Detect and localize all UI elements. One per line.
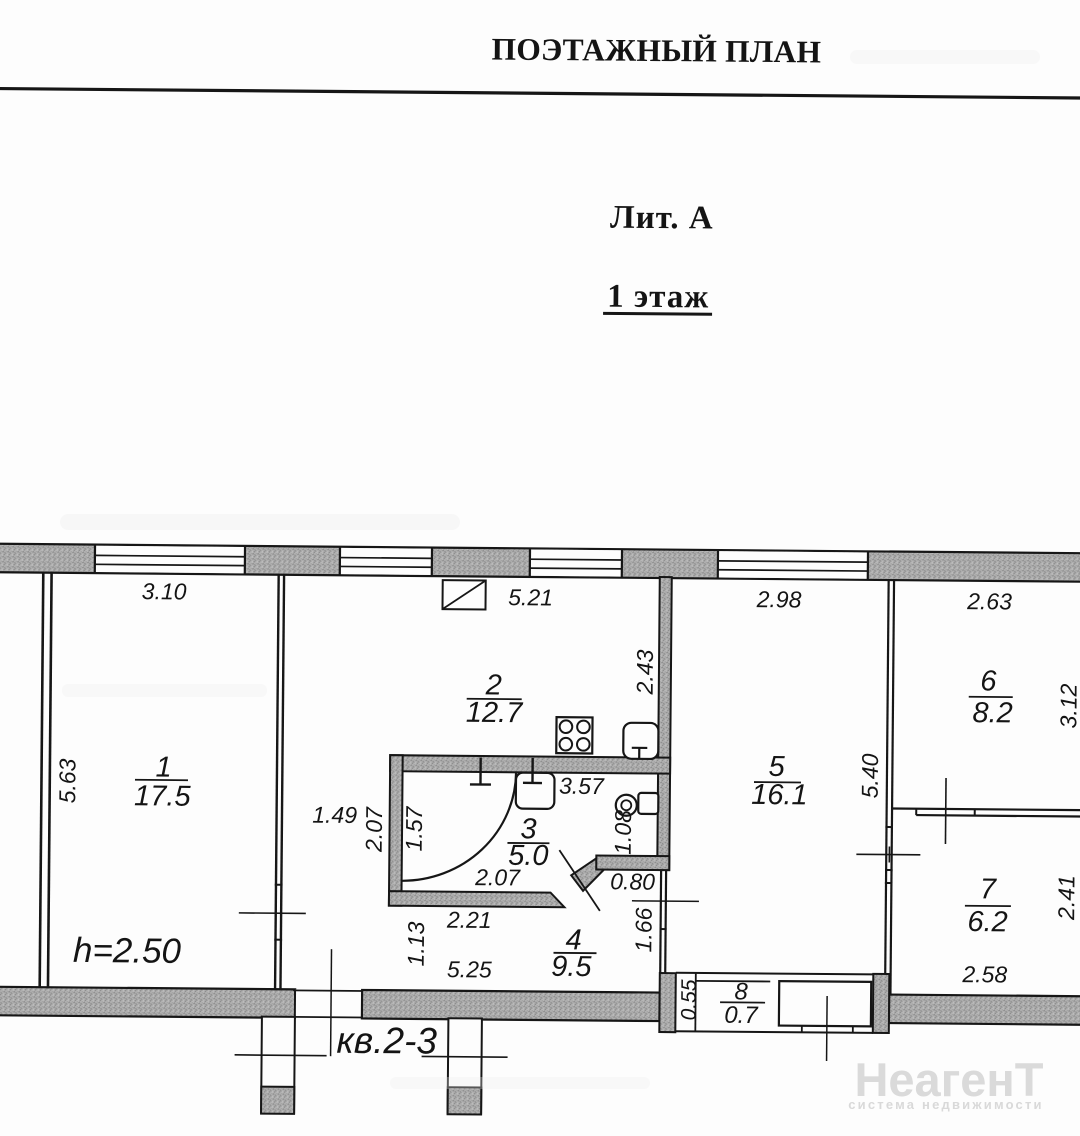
svg-text:кв.2-3: кв.2-3 [336, 1020, 437, 1062]
svg-text:1.57: 1.57 [401, 805, 427, 851]
svg-text:5.21: 5.21 [508, 584, 553, 610]
svg-text:ПОЭТАЖНЫЙ ПЛАН: ПОЭТАЖНЫЙ ПЛАН [491, 32, 821, 70]
svg-text:0.55: 0.55 [678, 979, 701, 1020]
svg-text:1.08: 1.08 [610, 810, 636, 855]
svg-text:2.41: 2.41 [1053, 875, 1079, 921]
svg-text:17.5: 17.5 [134, 780, 192, 812]
svg-text:5.0: 5.0 [508, 840, 549, 872]
svg-text:1: 1 [155, 751, 171, 783]
svg-text:1 этаж: 1 этаж [607, 279, 709, 316]
svg-text:1.49: 1.49 [312, 802, 357, 828]
svg-text:0.7: 0.7 [724, 1002, 759, 1029]
svg-text:6: 6 [980, 665, 997, 697]
svg-text:16.1: 16.1 [751, 779, 808, 811]
svg-text:3.12: 3.12 [1055, 683, 1080, 728]
svg-text:3.57: 3.57 [559, 773, 605, 799]
svg-text:12.7: 12.7 [466, 697, 525, 730]
svg-text:8.2: 8.2 [972, 697, 1013, 729]
svg-text:6.2: 6.2 [967, 906, 1008, 938]
svg-text:5.40: 5.40 [857, 753, 883, 798]
svg-text:h=2.50: h=2.50 [73, 931, 182, 971]
svg-text:1.13: 1.13 [403, 921, 429, 966]
svg-text:2.07: 2.07 [361, 806, 387, 853]
svg-text:5.63: 5.63 [54, 758, 80, 803]
svg-text:Лит. А: Лит. А [610, 200, 714, 237]
svg-text:2.21: 2.21 [446, 907, 492, 933]
svg-text:2.58: 2.58 [961, 961, 1007, 987]
svg-text:3.10: 3.10 [142, 578, 187, 604]
svg-text:2.98: 2.98 [756, 586, 802, 612]
svg-text:9.5: 9.5 [551, 951, 592, 983]
svg-text:система недвижимости: система недвижимости [848, 1097, 1044, 1112]
svg-text:2.43: 2.43 [632, 649, 658, 695]
svg-text:0.80: 0.80 [610, 868, 655, 894]
svg-text:1.66: 1.66 [630, 907, 656, 952]
svg-text:5.25: 5.25 [447, 956, 492, 982]
svg-text:7: 7 [980, 873, 998, 905]
svg-text:2.63: 2.63 [966, 588, 1012, 614]
